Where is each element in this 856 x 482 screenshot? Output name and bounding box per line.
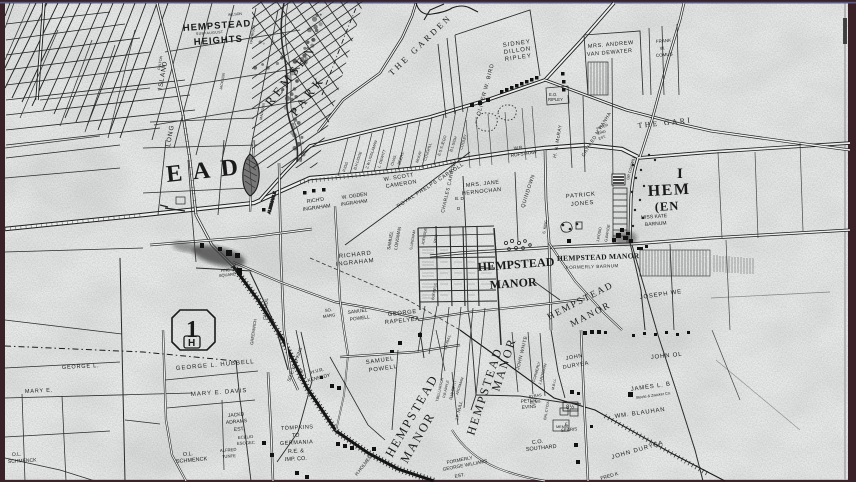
- svg-text:EST.: EST.: [234, 426, 245, 433]
- svg-text:B. D: B. D: [455, 196, 465, 201]
- svg-text:HEM: HEM: [647, 181, 691, 200]
- svg-text:8½: 8½: [566, 404, 574, 411]
- svg-text:(EN: (EN: [654, 199, 679, 214]
- svg-text:TUNFE: TUNFE: [222, 453, 236, 459]
- svg-text:R.E. &: R.E. &: [288, 448, 305, 455]
- svg-text:I: I: [677, 166, 683, 182]
- svg-text:MEMIS: MEMIS: [556, 425, 569, 429]
- svg-text:IMP. CO.: IMP. CO.: [285, 456, 308, 463]
- svg-text:W.: W.: [660, 46, 666, 51]
- svg-text:RIPLEY: RIPLEY: [548, 97, 563, 102]
- svg-text:TO: TO: [292, 433, 301, 439]
- svg-text:O.L.: O.L.: [12, 452, 22, 458]
- svg-text:H: H: [188, 338, 195, 349]
